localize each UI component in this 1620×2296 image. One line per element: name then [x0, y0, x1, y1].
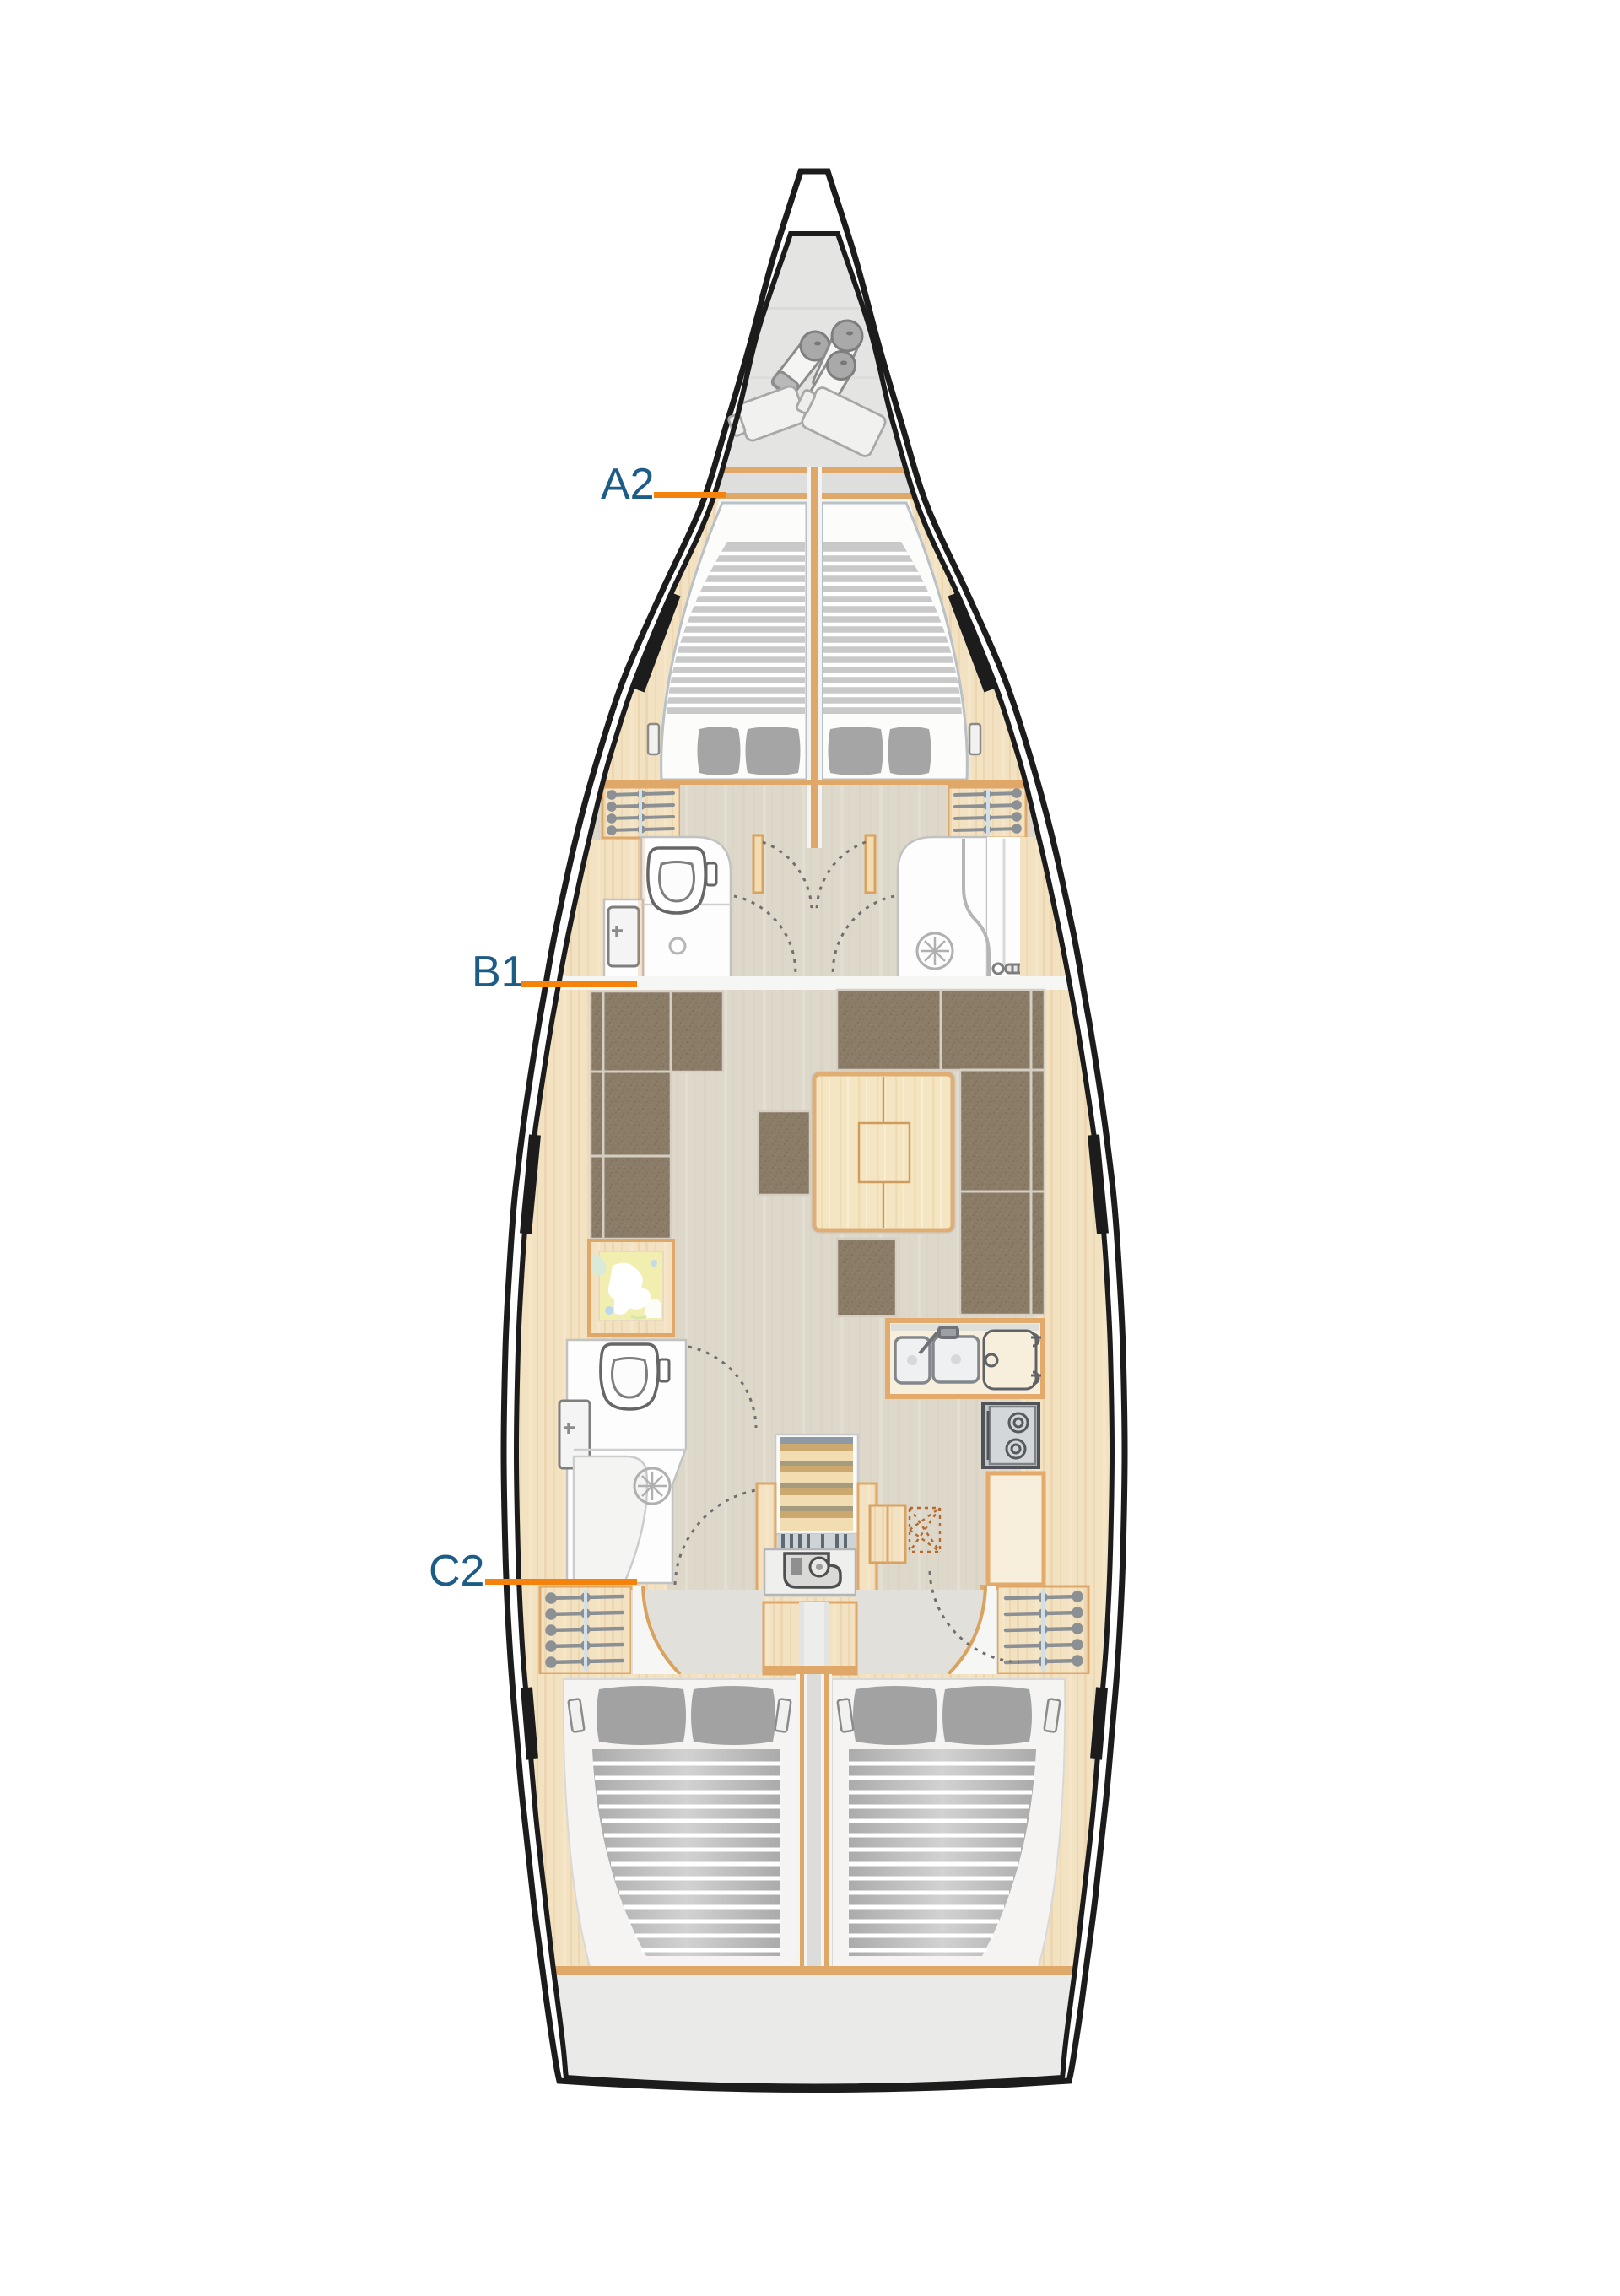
svg-text:C2: C2 [429, 1547, 484, 1596]
svg-text:B1: B1 [472, 948, 526, 997]
svg-text:A2: A2 [601, 460, 655, 509]
